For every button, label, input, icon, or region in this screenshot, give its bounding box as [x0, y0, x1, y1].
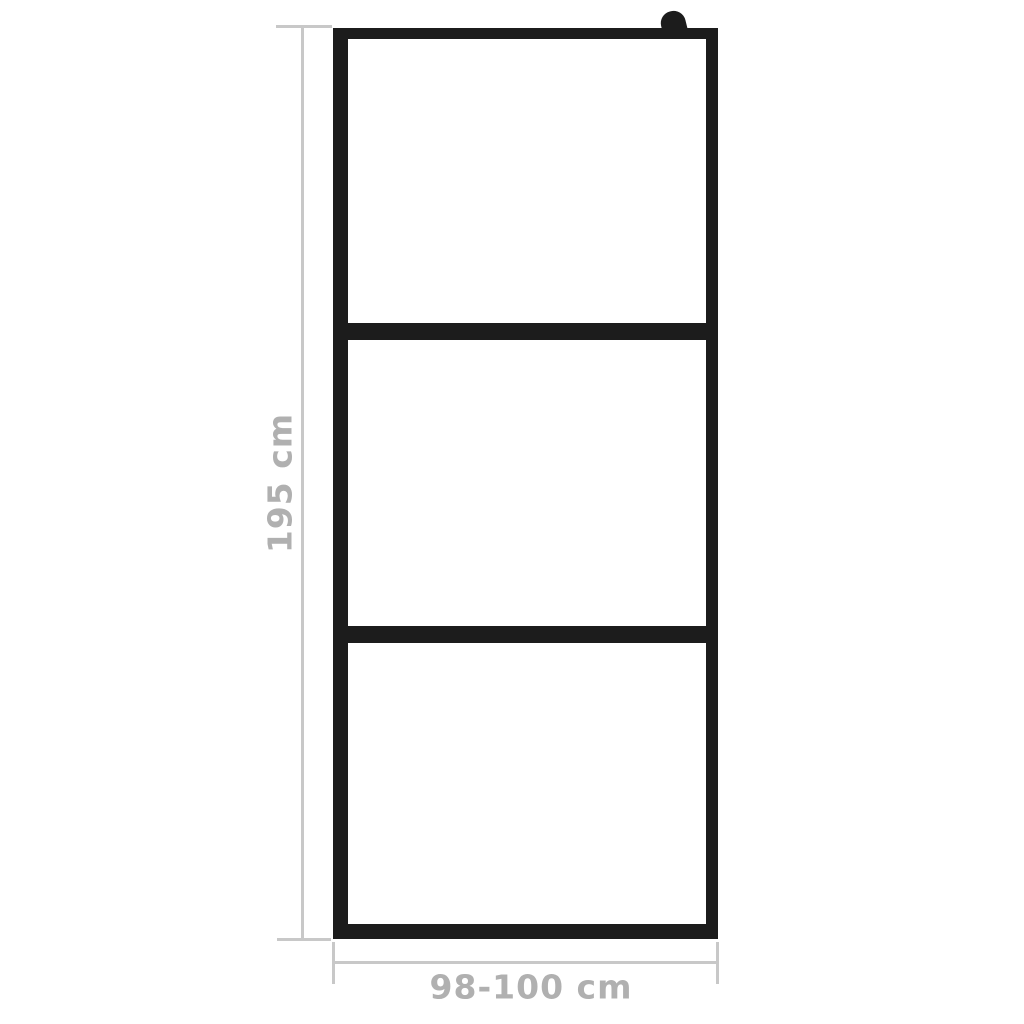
frame-mullion-lower [344, 626, 710, 643]
glass-panel-bottom [348, 643, 706, 924]
width-dimension-line [333, 961, 718, 964]
width-dimension-cap-left [332, 942, 335, 984]
height-dimension-label: 195 cm [261, 413, 300, 553]
frame-mullion-upper [344, 323, 710, 340]
height-dimension-cap-top [276, 25, 332, 28]
glass-panel-middle [348, 340, 706, 626]
glass-panel-top [348, 39, 706, 323]
width-dimension-cap-right [716, 942, 719, 984]
height-dimension-line [301, 25, 304, 941]
height-dimension-cap-bottom [277, 938, 331, 941]
width-dimension-label: 98-100 cm [430, 968, 633, 1007]
shower-screen-frame [333, 28, 718, 939]
dimension-diagram: 195 cm 98-100 cm [0, 0, 1024, 1024]
